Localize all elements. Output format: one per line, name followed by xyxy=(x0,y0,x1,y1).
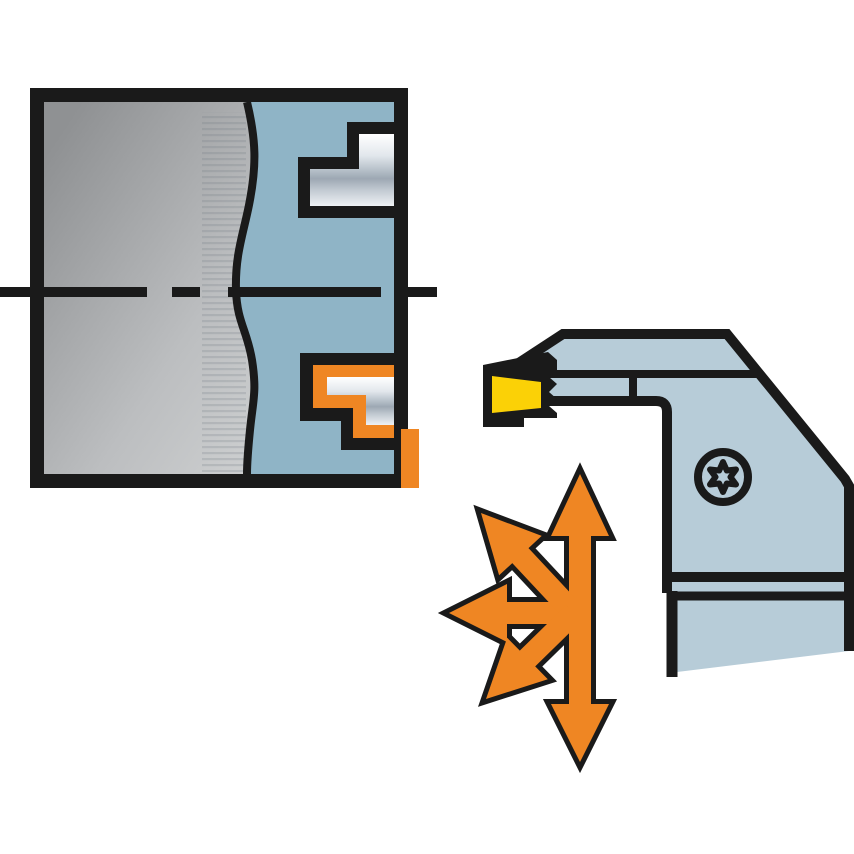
technical-illustration xyxy=(0,0,854,854)
workpiece-cross-section xyxy=(0,95,437,488)
feed-direction-arrows-icon xyxy=(449,474,609,762)
insert-position-tab xyxy=(401,429,419,488)
diagram-svg xyxy=(0,0,854,854)
arrows-hub xyxy=(569,598,591,630)
arrows-fill xyxy=(449,474,609,762)
cutting-insert xyxy=(492,376,541,413)
